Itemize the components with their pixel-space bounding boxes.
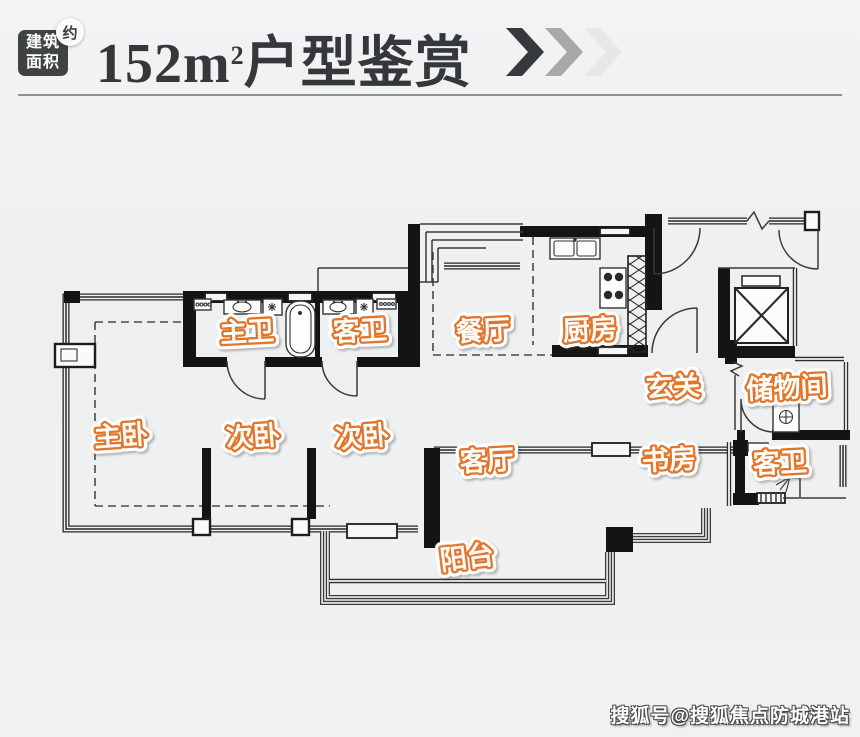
room-labels: 主卫 主卫 客卫 客卫 餐厅 餐厅 厨房 厨房 玄关 玄关 储物间 储物间 bbox=[93, 314, 828, 577]
svg-text:主卫: 主卫 bbox=[219, 316, 274, 349]
header-divider bbox=[18, 94, 842, 96]
svg-text:主卧: 主卧 bbox=[93, 419, 149, 453]
chevron-right-icon bbox=[545, 28, 583, 76]
svg-text:阳台: 阳台 bbox=[438, 539, 495, 576]
floorplan-drawing: 主卫 主卫 客卫 客卫 餐厅 餐厅 厨房 厨房 玄关 玄关 储物间 储物间 bbox=[0, 0, 860, 737]
room-label-master-bath: 主卫 主卫 bbox=[219, 316, 274, 349]
title-area-sup: 2 bbox=[231, 41, 244, 70]
svg-text:餐厅: 餐厅 bbox=[455, 315, 510, 348]
svg-text:储物间: 储物间 bbox=[746, 371, 828, 405]
floorplan-poster: 建筑 面积 约 152m2户型鉴赏 bbox=[0, 0, 860, 737]
room-label-bedroom-3: 次卧 次卧 bbox=[334, 420, 390, 454]
area-badge-line1: 建筑 bbox=[26, 33, 60, 53]
window-bands bbox=[66, 221, 843, 529]
duct-shaft bbox=[628, 256, 646, 352]
balcony-railing bbox=[325, 508, 706, 600]
page-title: 152m2户型鉴赏 bbox=[96, 18, 472, 80]
room-label-dining: 餐厅 餐厅 bbox=[455, 315, 510, 348]
svg-text:次卧: 次卧 bbox=[334, 420, 390, 454]
room-label-kitchen: 厨房 厨房 bbox=[562, 314, 617, 347]
title-suffix: 户型鉴赏 bbox=[244, 33, 472, 95]
svg-text:次卧: 次卧 bbox=[225, 420, 281, 454]
room-label-living: 客厅 客厅 bbox=[459, 444, 515, 478]
approx-text: 约 bbox=[62, 22, 77, 43]
svg-text:玄关: 玄关 bbox=[645, 370, 701, 404]
svg-text:客厅: 客厅 bbox=[459, 444, 515, 478]
chevron-right-icon bbox=[584, 28, 622, 76]
elevator bbox=[735, 276, 788, 343]
room-label-storage: 储物间 储物间 bbox=[746, 371, 828, 405]
title-area-unit: m bbox=[183, 33, 231, 95]
stove bbox=[600, 268, 626, 308]
chevron-right-icon bbox=[506, 28, 544, 76]
chevron-right-icons bbox=[506, 28, 626, 83]
title-area-number: 152 bbox=[96, 33, 183, 95]
svg-text:厨房: 厨房 bbox=[562, 314, 617, 347]
room-label-master-bedroom: 主卧 主卧 bbox=[93, 419, 149, 453]
area-badge-line2: 面积 bbox=[26, 53, 60, 73]
watermark: 搜狐号@搜狐焦点防城港站 bbox=[610, 701, 850, 728]
room-label-guest-bath-bottom: 客卫 客卫 bbox=[752, 446, 808, 480]
room-label-foyer: 玄关 玄关 bbox=[645, 370, 701, 404]
room-label-study: 书房 书房 bbox=[641, 444, 696, 477]
svg-text:客卫: 客卫 bbox=[332, 314, 388, 348]
room-label-guest-bath-top: 客卫 客卫 bbox=[332, 314, 388, 348]
room-label-balcony: 阳台 阳台 bbox=[438, 539, 495, 576]
shower-icon bbox=[772, 477, 790, 492]
room-label-bedroom-2: 次卧 次卧 bbox=[225, 420, 281, 454]
svg-text:书房: 书房 bbox=[641, 444, 696, 477]
svg-text:客卫: 客卫 bbox=[752, 446, 808, 480]
approx-bubble: 约 bbox=[56, 18, 84, 46]
